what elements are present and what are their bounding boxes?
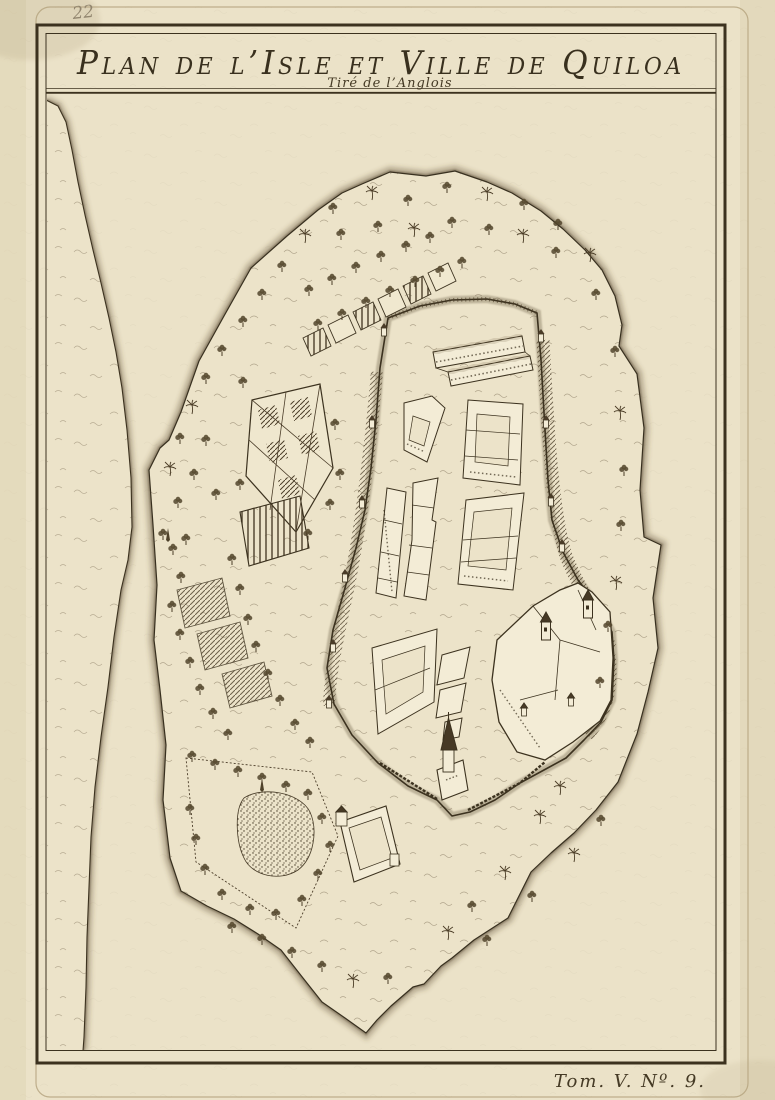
handwritten-plate-number: 22 [70,2,95,24]
map-canvas: 22 Plan de l’Isle et Ville de Quiloa Tir… [0,0,775,1100]
map-subtitle: Tiré de l’Anglois [327,76,452,91]
paper-crease [740,0,775,1100]
block-b [463,400,523,485]
thicket [237,792,314,876]
block-e [458,493,524,590]
engraved-map-sheet: 22 Plan de l’Isle et Ville de Quiloa Tir… [0,0,775,1100]
tome-plate-reference: Tom. V. Nº. 9. [554,1071,706,1092]
